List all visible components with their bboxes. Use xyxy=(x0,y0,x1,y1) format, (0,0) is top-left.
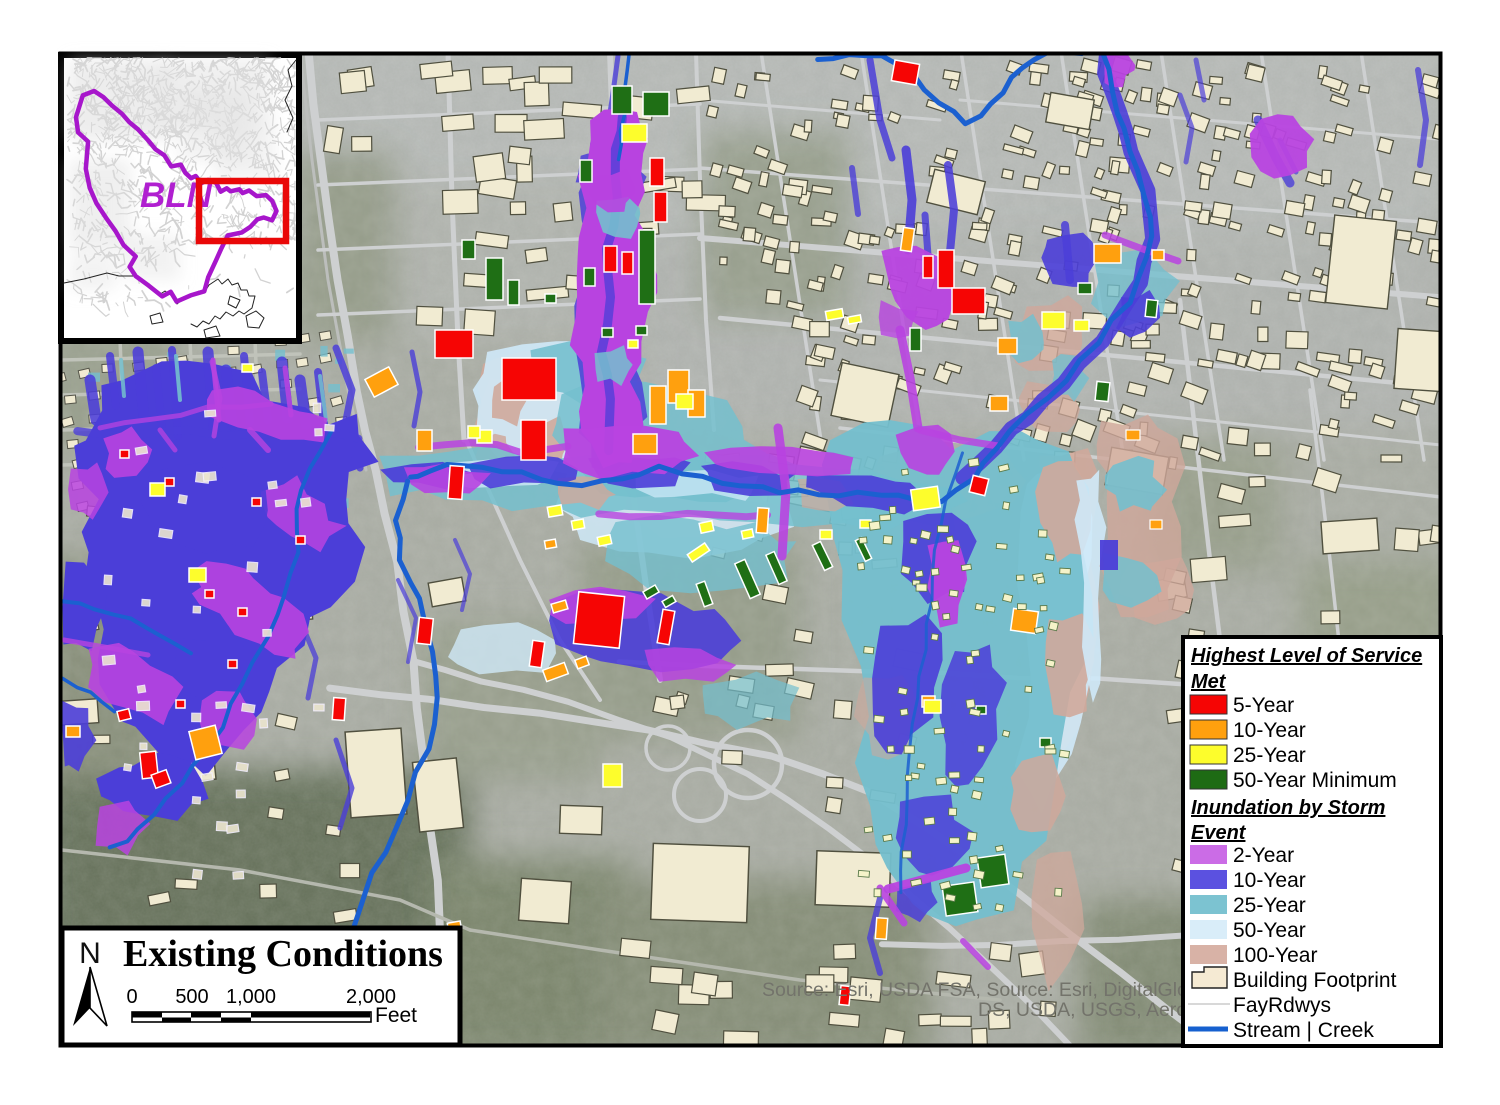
svg-text:100-Year: 100-Year xyxy=(1233,944,1317,967)
svg-text:2-Year: 2-Year xyxy=(1233,844,1294,867)
svg-text:Building Footprint: Building Footprint xyxy=(1233,969,1397,992)
svg-text:Highest Level of Service: Highest Level of Service xyxy=(1191,645,1422,667)
svg-text:1,000: 1,000 xyxy=(226,986,276,1008)
svg-text:Met: Met xyxy=(1191,671,1227,693)
svg-text:5-Year: 5-Year xyxy=(1233,694,1294,717)
svg-text:10-Year: 10-Year xyxy=(1233,869,1306,892)
svg-text:500: 500 xyxy=(175,986,208,1008)
svg-text:0: 0 xyxy=(126,986,137,1008)
svg-text:FayRdwys: FayRdwys xyxy=(1233,994,1331,1017)
svg-text:50-Year Minimum: 50-Year Minimum xyxy=(1233,769,1397,792)
svg-text:10-Year: 10-Year xyxy=(1233,719,1306,742)
svg-text:Existing Conditions: Existing Conditions xyxy=(123,933,443,975)
svg-text:Stream | Creek: Stream | Creek xyxy=(1233,1019,1374,1042)
svg-text:Event: Event xyxy=(1191,822,1247,844)
svg-text:25-Year: 25-Year xyxy=(1233,744,1306,767)
svg-text:25-Year: 25-Year xyxy=(1233,894,1306,917)
svg-text:50-Year: 50-Year xyxy=(1233,919,1306,942)
svg-text:Feet: Feet xyxy=(375,1004,417,1027)
svg-text:N: N xyxy=(79,937,101,970)
svg-text:Inundation by Storm: Inundation by Storm xyxy=(1191,797,1385,819)
